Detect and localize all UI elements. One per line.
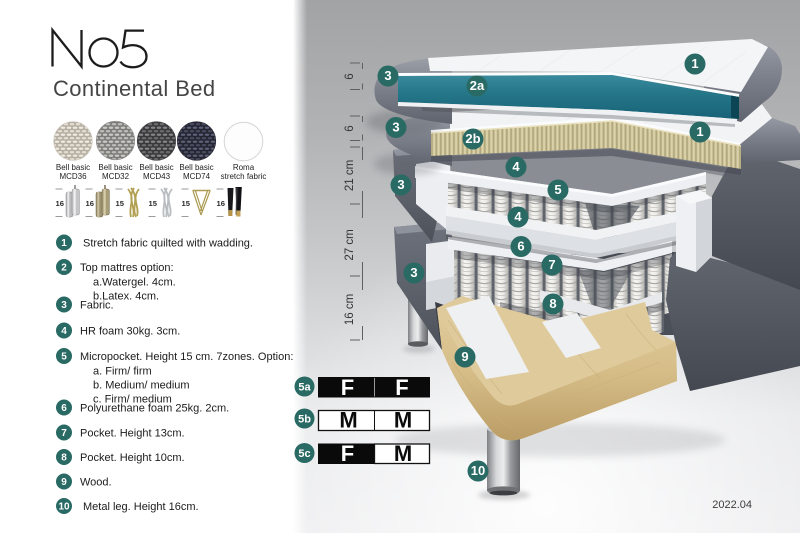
svg-text:16: 16 — [217, 199, 225, 208]
svg-text:M: M — [339, 408, 357, 433]
svg-text:16: 16 — [56, 199, 64, 208]
svg-text:8: 8 — [549, 296, 556, 311]
svg-text:7: 7 — [61, 428, 67, 439]
svg-text:5: 5 — [554, 182, 561, 197]
svg-text:Micropocket. Height 15 cm. 7zo: Micropocket. Height 15 cm. 7zones. Optio… — [80, 351, 293, 363]
svg-text:a. Firm/ firm: a. Firm/ firm — [93, 366, 152, 378]
svg-text:Metal leg. Height 16cm.: Metal leg. Height 16cm. — [83, 501, 199, 513]
svg-text:1: 1 — [61, 238, 67, 249]
svg-text:4: 4 — [514, 209, 522, 224]
svg-text:Bell basic: Bell basic — [56, 163, 90, 172]
svg-text:15: 15 — [149, 199, 158, 208]
svg-text:F: F — [341, 441, 354, 466]
svg-text:Pocket. Height 13cm.: Pocket. Height 13cm. — [80, 428, 185, 440]
svg-text:2a: 2a — [470, 78, 485, 93]
svg-text:Polyurethane foam 25kg. 2cm.: Polyurethane foam 25kg. 2cm. — [80, 403, 229, 415]
svg-text:Stretch fabric quilted with wa: Stretch fabric quilted with wadding. — [83, 238, 253, 250]
svg-text:Bell basic: Bell basic — [179, 163, 213, 172]
svg-text:5c: 5c — [298, 448, 310, 460]
svg-text:7: 7 — [548, 257, 555, 272]
svg-text:10: 10 — [58, 502, 70, 513]
svg-text:MCD43: MCD43 — [143, 172, 171, 181]
svg-text:b. Medium/ medium: b. Medium/ medium — [93, 380, 190, 392]
svg-text:3: 3 — [397, 177, 404, 192]
svg-text:a.Watergel. 4cm.: a.Watergel. 4cm. — [93, 277, 176, 289]
svg-text:21 cm: 21 cm — [344, 160, 356, 191]
svg-text:1: 1 — [696, 124, 703, 139]
svg-text:Continental Bed: Continental Bed — [53, 76, 216, 101]
svg-text:Pocket. Height 10cm.: Pocket. Height 10cm. — [80, 452, 185, 464]
svg-text:M: M — [394, 408, 412, 433]
svg-text:4: 4 — [61, 326, 67, 337]
svg-text:3: 3 — [410, 265, 417, 280]
svg-text:10: 10 — [471, 463, 485, 478]
svg-text:Roma: Roma — [233, 163, 255, 172]
svg-text:9: 9 — [461, 349, 468, 364]
svg-text:stretch fabric: stretch fabric — [221, 172, 267, 181]
svg-text:MCD32: MCD32 — [102, 172, 130, 181]
svg-text:27 cm: 27 cm — [344, 229, 356, 260]
svg-text:1: 1 — [691, 56, 698, 71]
svg-text:M: M — [394, 441, 412, 466]
svg-text:Bell basic: Bell basic — [139, 163, 173, 172]
svg-text:4: 4 — [512, 159, 520, 174]
svg-text:MCD36: MCD36 — [59, 172, 87, 181]
svg-text:2022.04: 2022.04 — [712, 499, 752, 511]
svg-text:5: 5 — [61, 352, 67, 363]
svg-text:Wood.: Wood. — [80, 477, 112, 489]
svg-text:6: 6 — [517, 239, 524, 254]
svg-text:3: 3 — [392, 120, 399, 135]
svg-text:Bell basic: Bell basic — [98, 163, 132, 172]
svg-text:16: 16 — [86, 199, 94, 208]
svg-text:6: 6 — [61, 403, 67, 414]
svg-text:5b: 5b — [298, 414, 311, 426]
svg-text:HR foam 30kg. 3cm.: HR foam 30kg. 3cm. — [80, 326, 180, 338]
svg-text:F: F — [341, 375, 354, 400]
svg-text:2b: 2b — [465, 131, 480, 146]
svg-text:Fabric.: Fabric. — [80, 300, 114, 312]
svg-text:15: 15 — [116, 199, 125, 208]
svg-text:8: 8 — [61, 453, 67, 464]
svg-text:15: 15 — [182, 199, 191, 208]
svg-text:F: F — [395, 375, 408, 400]
svg-text:5a: 5a — [298, 382, 311, 394]
svg-text:MCD74: MCD74 — [183, 172, 211, 181]
svg-text:9: 9 — [61, 477, 67, 488]
svg-text:16 cm: 16 cm — [344, 294, 356, 325]
svg-text:2: 2 — [61, 263, 67, 274]
svg-text:6: 6 — [344, 125, 356, 131]
svg-text:6: 6 — [344, 73, 356, 79]
svg-text:3: 3 — [384, 68, 391, 83]
svg-text:3: 3 — [61, 300, 67, 311]
svg-text:Top mattres option:: Top mattres option: — [80, 262, 174, 274]
